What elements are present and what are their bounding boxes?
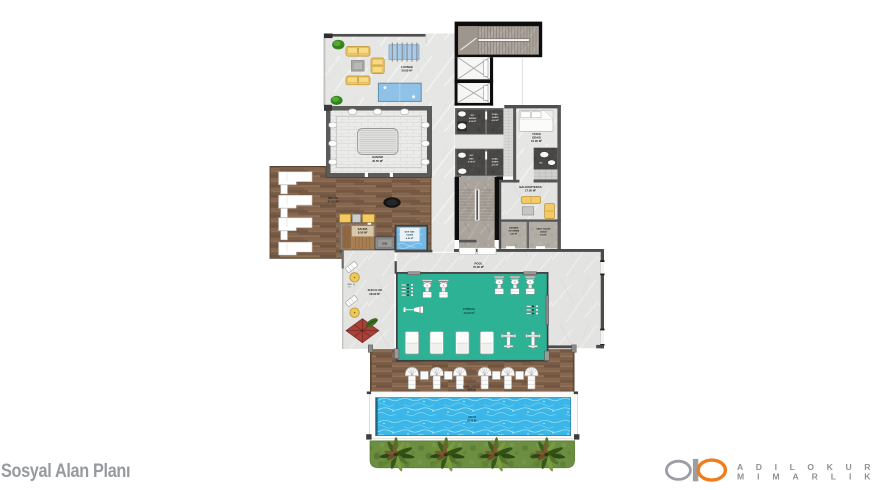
svg-text:ADILOKUR: ADILOKUR xyxy=(737,462,871,472)
svg-text:MIMARLIK: MIMARLIK xyxy=(737,472,871,482)
